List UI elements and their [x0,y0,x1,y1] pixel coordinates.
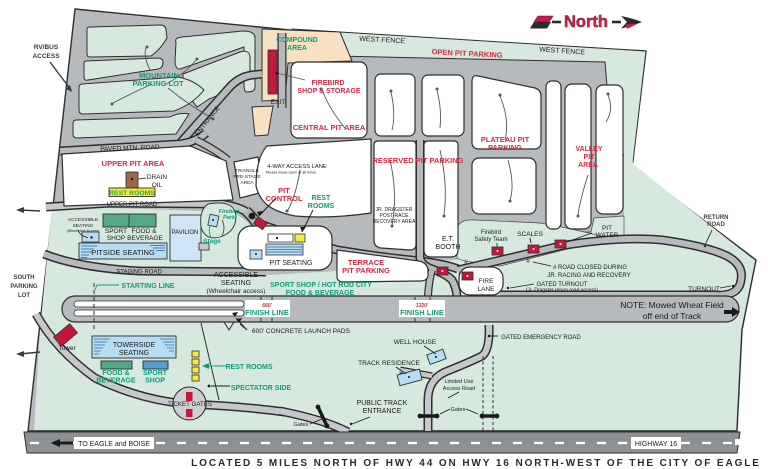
svg-text:REST ROOMS: REST ROOMS [109,190,155,197]
svg-text:ACCESSIBLE: ACCESSIBLE [68,217,98,223]
svg-text:AREA: AREA [287,45,307,52]
svg-text:North: North [564,13,608,31]
svg-text:600' CONCRETE LAUNCH PADS: 600' CONCRETE LAUNCH PADS [252,328,351,335]
svg-text:EXIT: EXIT [271,99,285,106]
svg-text:Gates: Gates [294,422,309,428]
svg-text:LANE: LANE [478,286,496,293]
svg-text:PARKING LOT: PARKING LOT [132,79,184,88]
svg-text:SPORT: SPORT [143,370,168,377]
svg-text:BOOTH: BOOTH [436,244,461,251]
svg-text:SHOP: SHOP [107,235,125,242]
svg-text:TICKET GATES: TICKET GATES [168,401,212,408]
svg-text:REST: REST [312,195,331,202]
svg-text:# ROAD CLOSED DURING: # ROAD CLOSED DURING [553,265,627,271]
svg-text:SPORT SHOP / HOT ROD CITY: SPORT SHOP / HOT ROD CITY [270,282,372,289]
svg-text:OIL: OIL [152,182,163,189]
svg-text:SPECTATOR SIDE: SPECTATOR SIDE [231,385,292,392]
svg-text:SOUTH: SOUTH [14,275,35,281]
svg-text:Gates: Gates [451,407,466,413]
svg-text:SPORT: SPORT [105,228,127,235]
svg-text:TOWERSIDE: TOWERSIDE [113,342,156,349]
svg-text:BEVERAGE: BEVERAGE [127,235,163,242]
svg-text:FOOD & BEVERAGE: FOOD & BEVERAGE [286,290,355,297]
svg-text:LOCATED 5 MILES NORTH OF HWY 4: LOCATED 5 MILES NORTH OF HWY 44 ON HWY 1… [191,458,761,469]
svg-text:HIGHWAY 16: HIGHWAY 16 [635,441,677,448]
svg-text:UPPER PIT ROAD: UPPER PIT ROAD [107,202,158,208]
svg-text:#: # [464,259,468,266]
svg-text:ROOMS: ROOMS [308,203,335,210]
svg-text:VALLEY: VALLEY [575,146,602,153]
svg-text:PARKING: PARKING [10,284,38,290]
svg-text:PAVILION: PAVILION [172,230,199,236]
svg-text:FIREBIRD: FIREBIRD [311,80,344,87]
svg-text:RESERVED PIT PARKING: RESERVED PIT PARKING [373,156,464,165]
svg-text:(Wheelchair access): (Wheelchair access) [207,288,266,295]
svg-text:ACCESS: ACCESS [32,53,60,60]
svg-text:E.T.: E.T. [442,236,454,243]
svg-text:WELL HOUSE: WELL HOUSE [394,339,437,346]
svg-text:(Jr. Dragster return road acce: (Jr. Dragster return road access) [526,288,598,294]
svg-text:ENTRANCE: ENTRANCE [363,408,402,415]
svg-text:PIT PARKING: PIT PARKING [342,266,390,275]
svg-text:WATER: WATER [596,232,619,239]
svg-text:Limited Use: Limited Use [444,379,473,385]
svg-text:Tower: Tower [58,345,76,352]
svg-text:COMPOUND: COMPOUND [276,37,318,44]
svg-text:AREA: AREA [240,180,254,186]
svg-text:Firebird: Firebird [481,230,501,236]
svg-text:CONTROL: CONTROL [265,194,302,203]
svg-text:STARTING LINE: STARTING LINE [121,283,174,290]
svg-text:NOTE: Mowed Wheat Field: NOTE: Mowed Wheat Field [620,300,724,310]
svg-text:SHOP & STORAGE: SHOP & STORAGE [297,88,360,95]
svg-text:ACCESSIBLE: ACCESSIBLE [214,272,258,279]
svg-text:SHOP: SHOP [145,378,165,385]
svg-text:PIT SEATING: PIT SEATING [270,260,313,267]
svg-text:(Wheelchair Access): (Wheelchair Access) [67,229,100,233]
svg-text:PIT: PIT [584,154,596,161]
svg-text:TURNOUT: TURNOUT [688,286,720,293]
svg-text:FOOD &: FOOD & [132,228,158,235]
svg-text:DRAIN: DRAIN [147,174,168,181]
svg-text:PUBLIC TRACK: PUBLIC TRACK [357,400,408,407]
svg-text:Access Road: Access Road [443,386,475,392]
svg-text:PITSIDE SEATING: PITSIDE SEATING [91,248,155,257]
svg-text:PRE-STAGE: PRE-STAGE [233,174,260,180]
svg-text:AREA: AREA [578,162,598,169]
svg-text:REST ROOMS: REST ROOMS [225,364,272,371]
svg-text:UPPER PIT AREA: UPPER PIT AREA [102,159,165,168]
svg-text:SCALES: SCALES [517,231,543,238]
svg-text:CENTRAL PIT AREA: CENTRAL PIT AREA [293,123,366,132]
svg-text:Stage: Stage [203,238,221,245]
svg-text:TRACK RESIDENCE: TRACK RESIDENCE [358,360,420,367]
svg-text:PARKING: PARKING [488,143,522,152]
svg-text:STAGING ROAD: STAGING ROAD [116,270,162,276]
svg-text:Park: Park [223,215,236,221]
svg-text:PIT: PIT [602,225,612,232]
svg-text:Please leave open at all times: Please leave open at all times [266,171,317,175]
svg-text:SEATING: SEATING [119,350,149,357]
svg-text:4-WAY ACCESS LANE: 4-WAY ACCESS LANE [267,164,327,170]
svg-text:TO EAGLE and BOISE: TO EAGLE and BOISE [78,441,150,448]
svg-text:RETURN: RETURN [704,215,729,221]
svg-text:LOT: LOT [18,293,30,299]
svg-text:FOOD &: FOOD & [102,370,129,377]
svg-text:TRIANGLE: TRIANGLE [235,168,259,174]
svg-text:FINISH LINE: FINISH LINE [245,308,289,317]
svg-text:Safety Team: Safety Team [474,237,507,243]
svg-text:FIRE: FIRE [479,278,494,285]
svg-text:RECOVERY AREA: RECOVERY AREA [373,219,416,225]
svg-text:FINISH LINE: FINISH LINE [400,308,444,317]
svg-text:SEATING: SEATING [221,280,251,287]
svg-text:JR. RACING AND RECOVERY: JR. RACING AND RECOVERY [547,273,630,279]
svg-text:RV/BUS: RV/BUS [34,44,59,51]
svg-text:GATED EMERGENCY ROAD: GATED EMERGENCY ROAD [501,335,581,341]
svg-text:ROAD: ROAD [707,222,725,228]
svg-text:BEVERAGE: BEVERAGE [96,378,136,385]
svg-text:#: # [526,258,530,265]
svg-text:off end of Track: off end of Track [643,311,702,321]
